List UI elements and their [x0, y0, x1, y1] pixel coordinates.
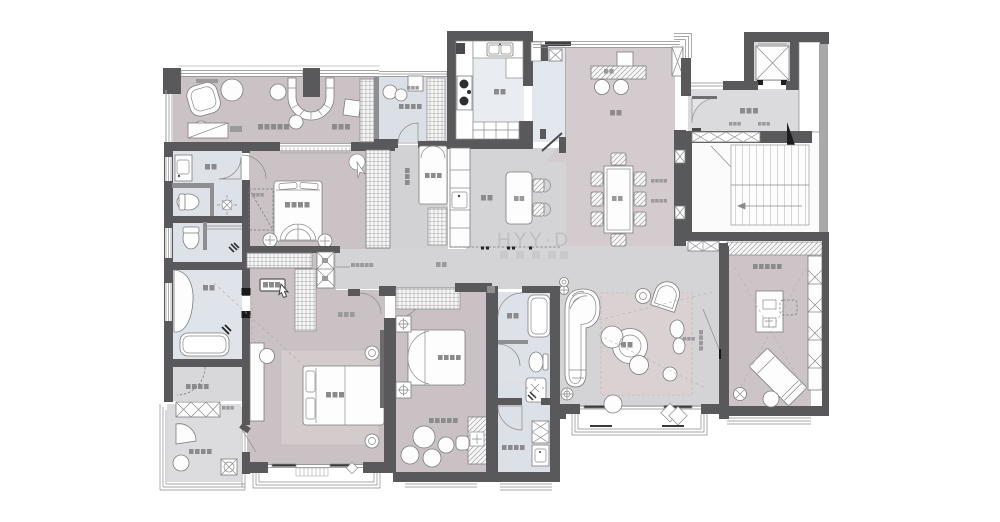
svg-text:HYY·D: HYY·D	[497, 230, 571, 251]
